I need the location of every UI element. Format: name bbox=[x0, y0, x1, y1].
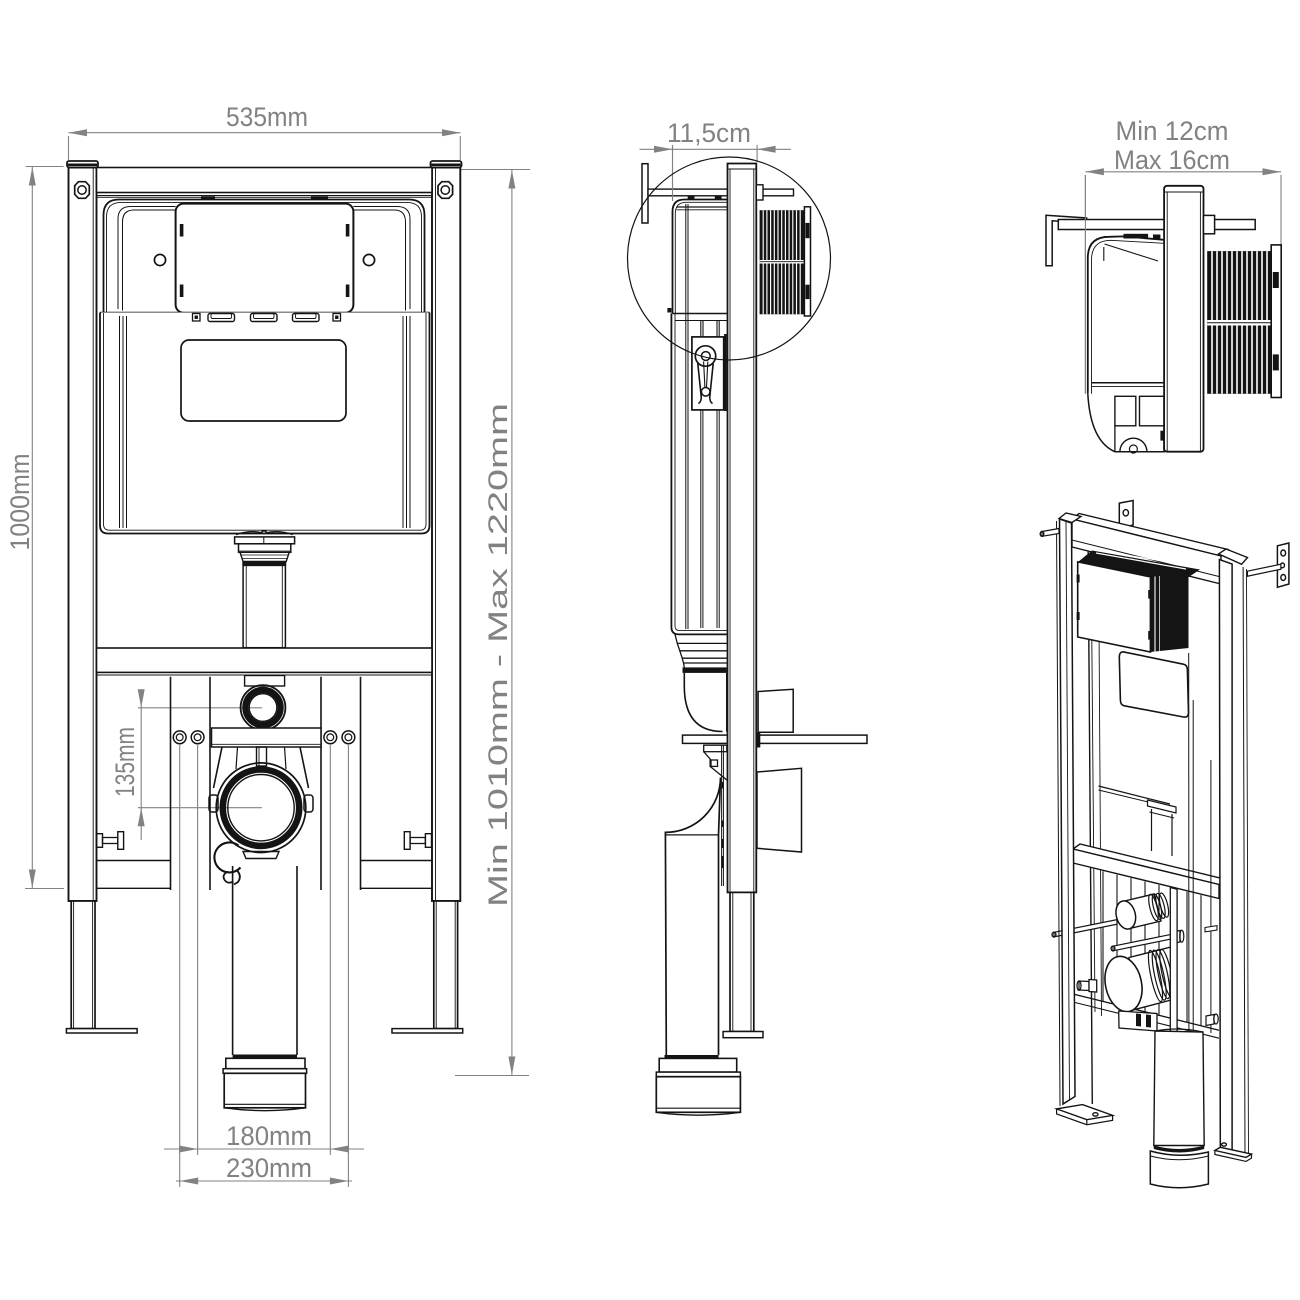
svg-text:135mm: 135mm bbox=[110, 727, 140, 797]
svg-text:Max 16cm: Max 16cm bbox=[1114, 145, 1230, 175]
svg-text:1000mm: 1000mm bbox=[5, 454, 35, 551]
svg-text:11,5cm: 11,5cm bbox=[667, 118, 751, 148]
svg-text:230mm: 230mm bbox=[226, 1153, 312, 1183]
svg-text:180mm: 180mm bbox=[226, 1121, 312, 1151]
svg-text:Min 12cm: Min 12cm bbox=[1116, 116, 1229, 146]
svg-text:Min 1010mm - Max 1220mm: Min 1010mm - Max 1220mm bbox=[483, 403, 513, 907]
svg-text:535mm: 535mm bbox=[226, 102, 308, 132]
